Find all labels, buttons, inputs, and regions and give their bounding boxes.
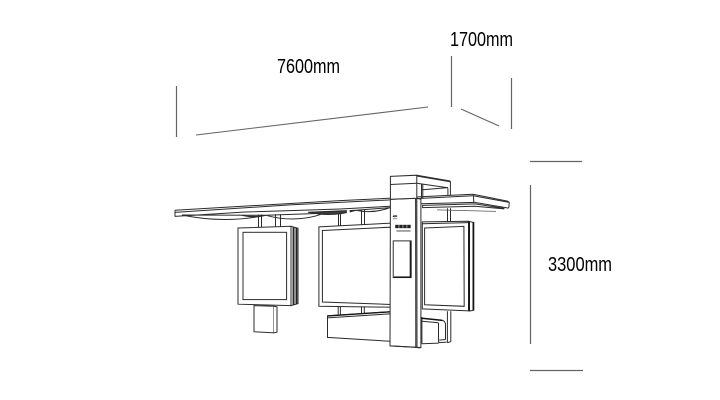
svg-text:7600mm: 7600mm [277, 55, 340, 78]
svg-text:3300mm: 3300mm [548, 253, 612, 276]
svg-text:1700mm: 1700mm [450, 28, 513, 51]
